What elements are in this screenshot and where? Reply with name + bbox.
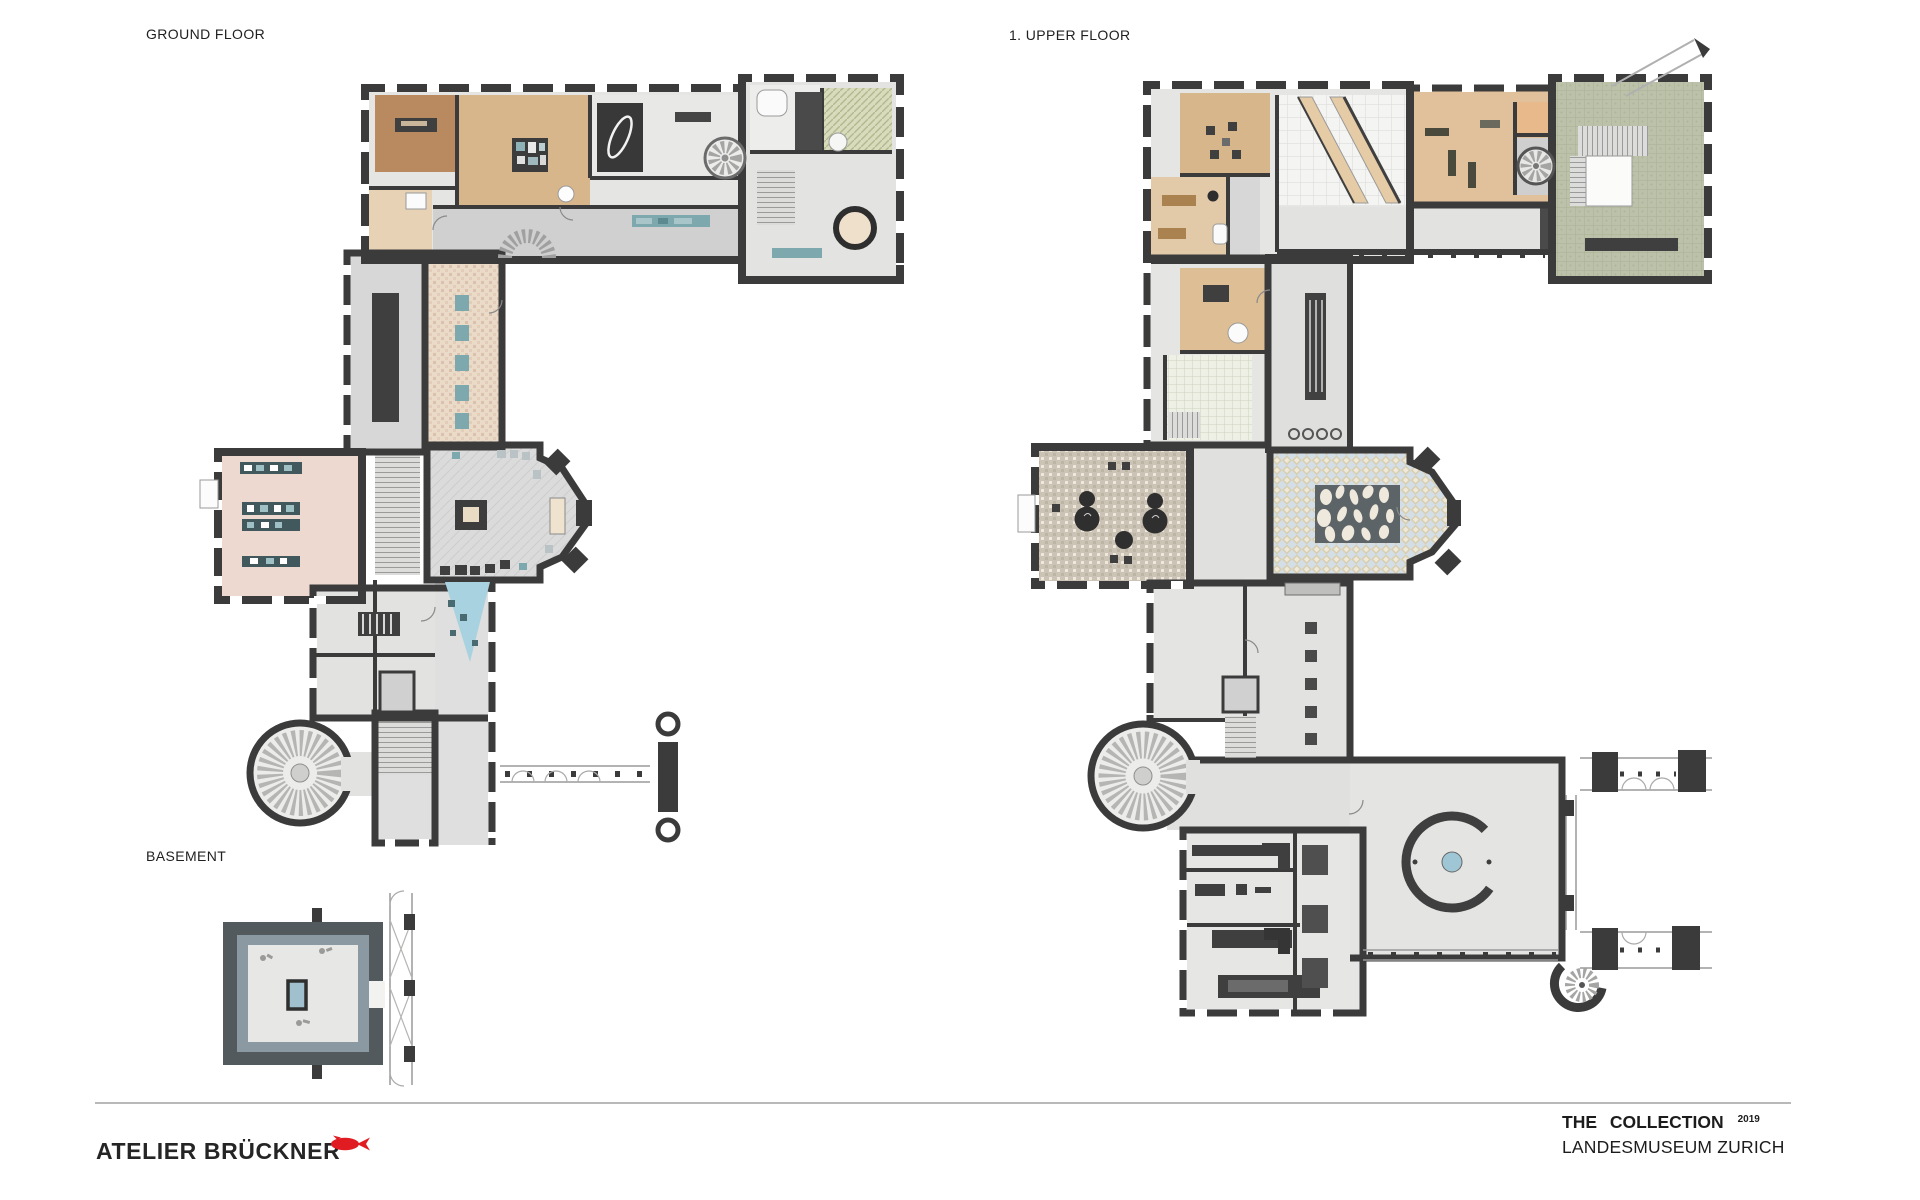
- spiral-stair-tower: [1091, 724, 1200, 828]
- footer-divider: [95, 1102, 1791, 1104]
- basement-room: [223, 922, 385, 1065]
- gate-tower: [658, 714, 678, 840]
- studio-logo: ATELIER BRÜCKNER: [96, 1138, 340, 1165]
- central-case: [288, 981, 306, 1009]
- fish-icon: [327, 1131, 371, 1155]
- stone-platform: [1315, 483, 1400, 543]
- entry-porch: [1018, 495, 1035, 532]
- right-arcades: [1560, 750, 1712, 970]
- basement-plan: [175, 880, 425, 1095]
- project-title-line: THE COLLECTION2019: [1562, 1110, 1822, 1135]
- spiral-stair-small: [1518, 148, 1554, 184]
- elevator: [1223, 677, 1258, 712]
- plan-sheet: GROUND FLOOR 1. UPPER FLOOR BASEMENT: [0, 0, 1920, 1200]
- project-subtitle: LANDESMUSEUM ZURICH: [1562, 1135, 1822, 1160]
- spiral-stair-corner: [1554, 966, 1602, 1007]
- long-display-case: [372, 293, 399, 422]
- project-title: THE COLLECTION: [1562, 1112, 1724, 1132]
- ground-floor-label: GROUND FLOOR: [146, 26, 265, 42]
- entry-porch: [200, 480, 218, 508]
- grille: [358, 612, 400, 636]
- stove-circle: [836, 209, 874, 247]
- project-year: 2019: [1738, 1114, 1760, 1125]
- arcade: [500, 766, 650, 782]
- elevator: [380, 672, 414, 712]
- staircase: [1225, 716, 1256, 758]
- ground-floor-plan: [165, 55, 915, 855]
- upper-floors: [1035, 78, 1708, 1013]
- upper-floor-plan: [1005, 35, 1730, 1035]
- title-block: THE COLLECTION2019 LANDESMUSEUM ZURICH: [1562, 1110, 1822, 1161]
- spiral-stair-small: [705, 138, 745, 178]
- staircase: [757, 170, 795, 225]
- spiral-stair-tower: [250, 723, 355, 823]
- picture-frames: [512, 138, 548, 172]
- dotted-case: [1285, 583, 1340, 595]
